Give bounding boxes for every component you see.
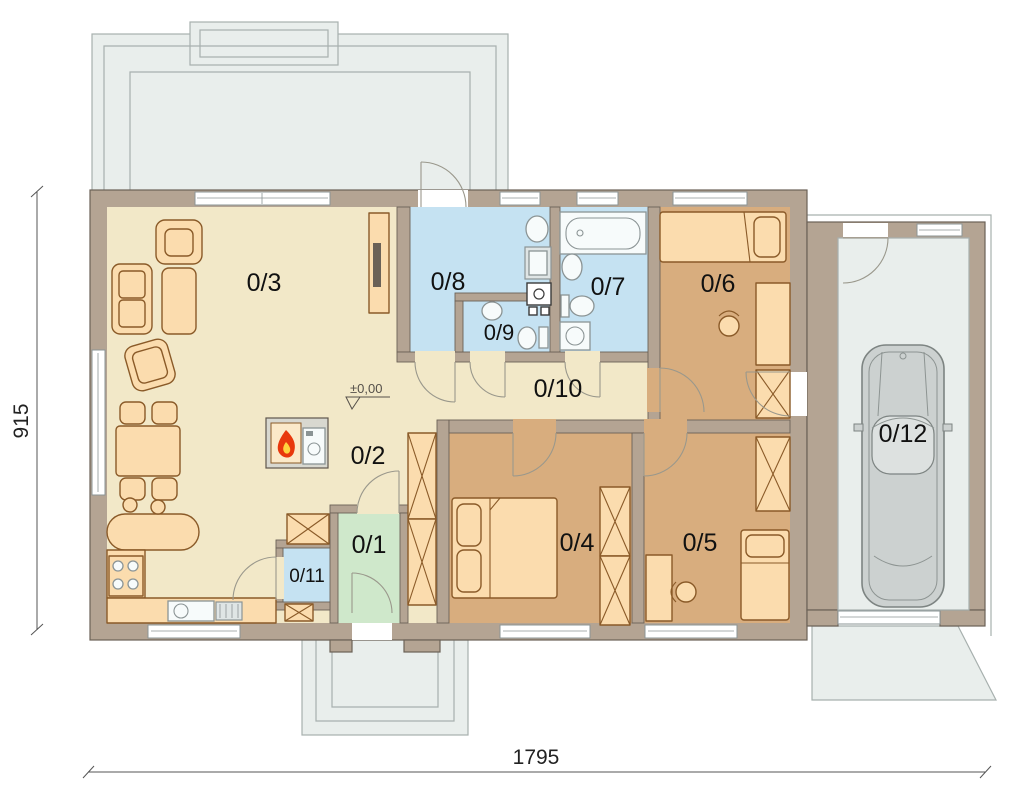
wardrobe [756,437,790,511]
wall-wc-left [455,301,463,352]
window-garage [917,224,962,236]
door-opening-entry [357,504,399,514]
desk [756,283,790,365]
room-label-0-11: 0/11 [289,566,325,587]
window-room6 [673,192,747,205]
wall-hall-room4 [437,420,449,623]
porch-wall-right [404,640,440,652]
tv-cabinet [369,213,389,313]
window-room5 [645,625,737,638]
bar-counter [107,514,199,550]
wc-washbasin [482,302,502,320]
room-label-0-5: 0/5 [683,529,718,557]
garage-door-jamb-right [940,610,985,626]
wall-room4-room5 [632,433,644,623]
wall-bedrooms-top [449,420,790,433]
wardrobe [408,433,436,605]
dimension-height-label: 915 [10,403,33,438]
stove-knob [306,431,313,436]
room-label-0-6: 0/6 [701,270,736,298]
room-label-0-2: 0/2 [351,442,386,470]
room-label-0-9: 0/9 [484,320,515,345]
room-label-0-7: 0/7 [591,273,626,301]
dining-chair [152,478,177,500]
room-label-0-3: 0/3 [247,269,282,297]
room-0-1-floor [338,513,400,623]
double-bed [452,498,557,598]
door-opening-room5 [644,419,687,434]
wardrobe [756,370,790,418]
room-label-0-10: 0/10 [534,375,583,403]
pillow [457,504,481,546]
door-opening-garage-side [843,223,888,237]
single-bed [660,212,786,262]
door-opening-wc [470,351,505,363]
door-opening-room6 [647,368,661,412]
sofa [112,264,152,334]
desk [646,555,672,621]
room-0-10-floor [397,362,650,420]
washbasin [562,254,582,280]
garage-gate [838,611,940,624]
window-terrace-slider [195,192,330,205]
dining-table [116,426,180,476]
floor-plan-page: 0/1 0/2 0/3 0/4 0/5 0/6 0/7 0/8 0/9 0/10… [0,0,1024,796]
wall-entry-left [330,513,338,623]
window-living-left [92,350,105,495]
washing-machine [560,322,590,350]
boiler-inner [529,251,547,275]
window-bath [577,192,618,205]
room-label-0-8: 0/8 [431,268,466,296]
fireplace [266,418,328,468]
door-opening-porch [352,623,392,640]
car-mirror [854,424,863,431]
window-room4 [500,625,590,638]
dining-chair [120,402,145,424]
entrance-porch [302,640,468,735]
car-mirror [943,424,952,431]
dining-chair [152,402,177,424]
door-opening-bath [565,351,600,363]
armchair [156,220,202,264]
tv-icon [373,243,381,287]
wall-living-utility [397,207,410,352]
chaise-seat [162,268,196,334]
room-label-0-12: 0/12 [879,420,928,448]
bathtub [560,212,646,254]
pillow [746,535,784,557]
pillow [754,217,780,257]
room-label-0-4: 0/4 [560,529,595,557]
floor-plan-drawing: 0/1 0/2 0/3 0/4 0/5 0/6 0/7 0/8 0/9 0/10… [0,0,1024,796]
level-marker-text: ±0,00 [350,381,382,396]
toilet [561,295,594,317]
bar-stool [123,498,137,512]
car-icon [854,345,952,607]
pillow [457,550,481,592]
wall-entry-right [400,513,408,623]
room-label-0-1: 0/1 [352,531,387,559]
cooktop [109,556,143,596]
wc-toilet [518,327,548,349]
dimension-width-label: 1795 [513,746,560,769]
kitchen-sink [168,601,242,621]
garage-door-jamb-left [807,610,838,626]
door-opening-terrace [418,190,468,207]
closet [287,514,329,544]
terrace-step [190,22,338,65]
cabinet [285,604,313,621]
window-utility [500,192,540,205]
single-bed [741,530,789,620]
terrace [92,22,508,205]
bar-stool [151,500,165,514]
porch-wall-left [330,640,352,652]
door-opening-back [790,372,807,416]
wardrobe [600,487,630,625]
dining-chair [120,478,145,500]
washbasin [526,216,548,242]
window-kitchen [148,625,240,638]
door-opening-utility [415,351,455,363]
door-opening-room4 [513,419,556,434]
